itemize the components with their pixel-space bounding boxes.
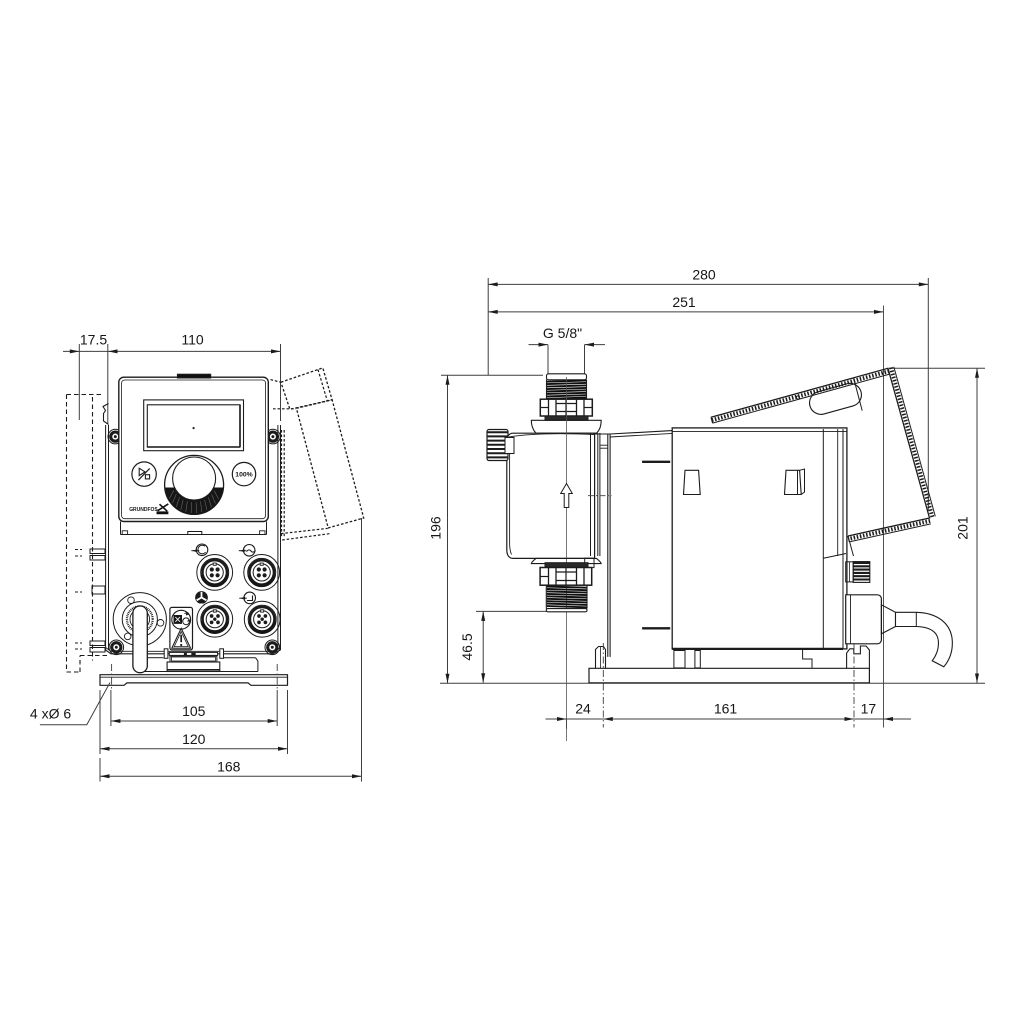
svg-text:120: 120 [182,731,206,747]
svg-text:251: 251 [672,294,696,310]
svg-text:196: 196 [428,516,444,540]
svg-text:24: 24 [575,701,591,717]
svg-text:110: 110 [181,332,204,348]
svg-text:17.5: 17.5 [80,332,107,348]
svg-text:G 5/8": G 5/8" [543,325,582,341]
svg-text:17: 17 [861,701,877,717]
svg-text:280: 280 [692,267,716,283]
svg-text:168: 168 [217,758,241,774]
svg-text:105: 105 [182,703,206,719]
svg-text:161: 161 [714,701,738,717]
svg-text:GRUNDFOS: GRUNDFOS [129,507,158,513]
svg-text:46.5: 46.5 [459,633,475,660]
svg-text:4 xØ 6: 4 xØ 6 [30,706,71,722]
svg-text:100%: 100% [235,472,252,479]
svg-text:201: 201 [955,516,971,540]
